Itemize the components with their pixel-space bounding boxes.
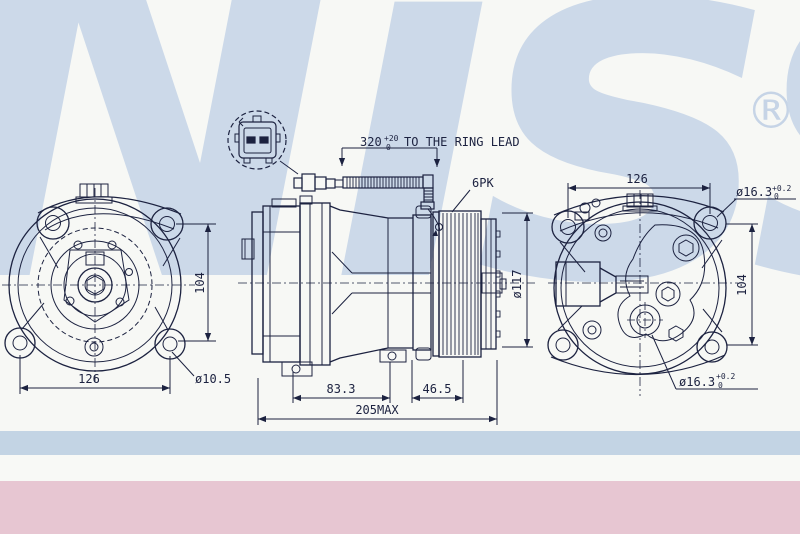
pulley-diameter-label: ø117 xyxy=(510,270,524,299)
brand-band-blue xyxy=(0,431,800,455)
total-length-label: 205MAX xyxy=(355,403,399,417)
rear-hole-top-tol-minus: 0 xyxy=(774,192,779,201)
belt-type-label: 6PK xyxy=(472,176,494,190)
harness xyxy=(294,148,443,236)
rear-hole-bottom-tol-plus: +0.2 xyxy=(716,372,735,381)
rear-width-dim-label: 126 xyxy=(626,172,648,186)
harness-corrugation xyxy=(347,177,419,188)
harness-length-tol-minus: 0 xyxy=(386,143,391,152)
rear-view-dimensions xyxy=(568,183,796,389)
pulley-grooves xyxy=(443,213,478,355)
front-hole-dim-label: ø10.5 xyxy=(195,372,231,386)
harness-length-label: 320 xyxy=(360,135,382,149)
brand-band-pink xyxy=(0,481,800,534)
side-view xyxy=(238,196,535,376)
harness-length-tol-plus: +20 xyxy=(384,134,399,143)
rear-hole-bottom-tol-minus: 0 xyxy=(718,381,723,390)
connector-detail xyxy=(228,111,298,174)
rear-hole-top-label: ø16.3 xyxy=(736,185,772,199)
front-height-dim-label: 104 xyxy=(193,272,207,294)
harness-note-label: TO THE RING LEAD xyxy=(404,135,520,149)
rear-view xyxy=(548,190,738,396)
length-b-label: 46.5 xyxy=(423,382,452,396)
rear-height-dim-label: 104 xyxy=(735,274,749,296)
length-a-label: 83.3 xyxy=(327,382,356,396)
front-view xyxy=(2,184,195,382)
rear-hole-bottom-label: ø16.3 xyxy=(679,375,715,389)
front-width-dim-label: 126 xyxy=(78,372,100,386)
side-view-dimensions xyxy=(258,190,533,425)
brand-band-white xyxy=(0,455,800,481)
